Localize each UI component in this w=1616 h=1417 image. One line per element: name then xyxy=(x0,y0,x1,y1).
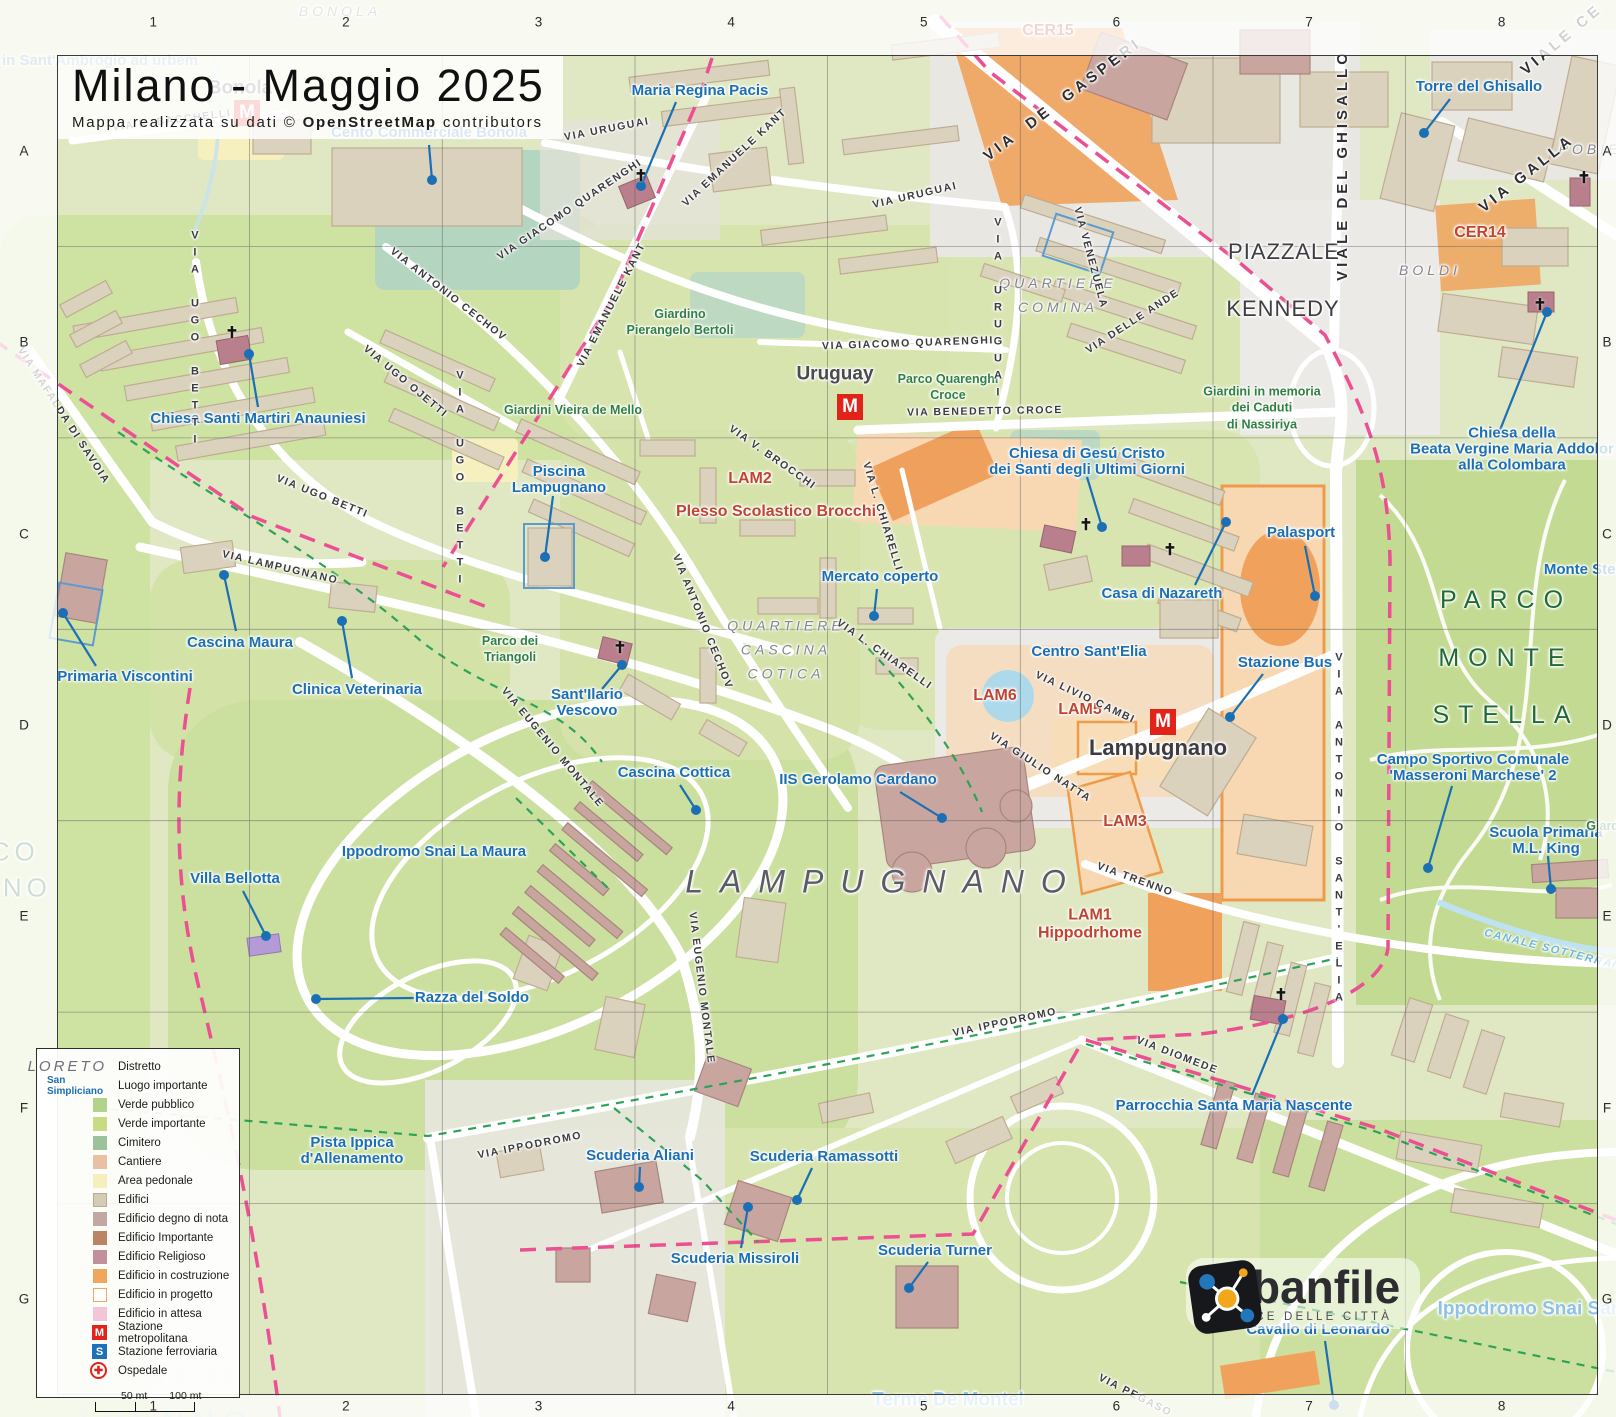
scale-bar: 50 mt 100 mt xyxy=(95,1390,205,1412)
legend-item: Verde pubblico xyxy=(47,1095,231,1114)
legend-item-distretto: LORETO Distretto xyxy=(47,1057,231,1076)
legend-swatch xyxy=(93,1250,107,1264)
legend-label: Edificio in costruzione xyxy=(118,1270,229,1282)
map-title: Milano - Maggio 2025 xyxy=(72,60,545,112)
scale-full-label: 100 mt xyxy=(169,1390,201,1402)
urbanfile-logo: urbanfile LA VOCE DELLE CITTÀ xyxy=(1186,1258,1420,1329)
legend-item: Area pedonale xyxy=(47,1171,231,1190)
legend-swatch xyxy=(93,1174,107,1188)
legend-item: ✚Ospedale xyxy=(47,1361,231,1380)
map-attribution: Mappa realizzata su dati © OpenStreetMap… xyxy=(72,114,545,131)
legend-swatch xyxy=(93,1117,107,1131)
scale-half-label: 50 mt xyxy=(121,1390,147,1402)
legend-label: Stazione metropolitana xyxy=(118,1321,231,1345)
legend-swatch xyxy=(93,1136,107,1150)
legend-swatch xyxy=(93,1212,107,1226)
legend-item: Edificio in costruzione xyxy=(47,1266,231,1285)
legend-item: Edifici xyxy=(47,1190,231,1209)
legend-item: Edificio Importante xyxy=(47,1228,231,1247)
place-sample: San Simpliciano xyxy=(47,1075,107,1097)
attribution-suffix: contributors xyxy=(443,114,543,131)
legend-label: Edificio Religioso xyxy=(118,1251,206,1263)
legend-swatch xyxy=(93,1269,107,1283)
legend-item: Cimitero xyxy=(47,1133,231,1152)
legend-swatch xyxy=(93,1098,107,1112)
map-sheet: Maria Regina PacisCento Commerciale Bono… xyxy=(0,0,1616,1417)
legend-label: Edifici xyxy=(118,1194,149,1206)
legend-item: Verde importante xyxy=(47,1114,231,1133)
legend-label: Edificio degno di nota xyxy=(118,1213,228,1225)
legend-swatch xyxy=(93,1288,107,1302)
legend-item: Edificio in progetto xyxy=(47,1285,231,1304)
legend-label: Edificio in attesa xyxy=(118,1308,202,1320)
margin-bottom xyxy=(0,1395,1616,1417)
legend-swatch xyxy=(93,1193,107,1207)
legend-label: Area pedonale xyxy=(118,1175,193,1187)
legend-icon-S: S xyxy=(92,1344,107,1359)
legend-item: MStazione metropolitana xyxy=(47,1323,231,1342)
margin-right xyxy=(1598,55,1616,1395)
district-sample: LORETO xyxy=(28,1058,107,1075)
legend-label: Verde importante xyxy=(118,1118,206,1130)
map-title-block: Milano - Maggio 2025 Mappa realizzata su… xyxy=(58,56,563,139)
legend-label: Cantiere xyxy=(118,1156,161,1168)
legend-label: Ospedale xyxy=(118,1365,167,1377)
attribution-osm: OpenStreetMap xyxy=(303,114,437,131)
legend-icon-✚: ✚ xyxy=(90,1362,107,1379)
legend-label: Edificio Importante xyxy=(118,1232,213,1244)
legend-label: Luogo importante xyxy=(118,1080,208,1092)
legend-label: Distretto xyxy=(118,1061,161,1073)
legend-icon-M: M xyxy=(92,1325,107,1340)
legend-label: Edificio in progetto xyxy=(118,1289,213,1301)
leader-lines-layer xyxy=(0,0,1616,1417)
attribution-prefix: Mappa realizzata su dati © xyxy=(72,114,297,131)
legend-item-luogo: San Simpliciano Luogo importante xyxy=(47,1076,231,1095)
legend-swatch xyxy=(93,1231,107,1245)
legend-swatch xyxy=(93,1307,107,1321)
legend-item: Cantiere xyxy=(47,1152,231,1171)
margin-top xyxy=(0,0,1616,55)
legend-label: Cimitero xyxy=(118,1137,161,1149)
legend-swatch xyxy=(93,1155,107,1169)
legend-label: Verde pubblico xyxy=(118,1099,194,1111)
legend: LORETO Distretto San Simpliciano Luogo i… xyxy=(36,1048,240,1398)
legend-item: Edificio Religioso xyxy=(47,1247,231,1266)
legend-item: Edificio degno di nota xyxy=(47,1209,231,1228)
legend-item: SStazione ferroviaria xyxy=(47,1342,231,1361)
legend-label: Stazione ferroviaria xyxy=(118,1346,217,1358)
